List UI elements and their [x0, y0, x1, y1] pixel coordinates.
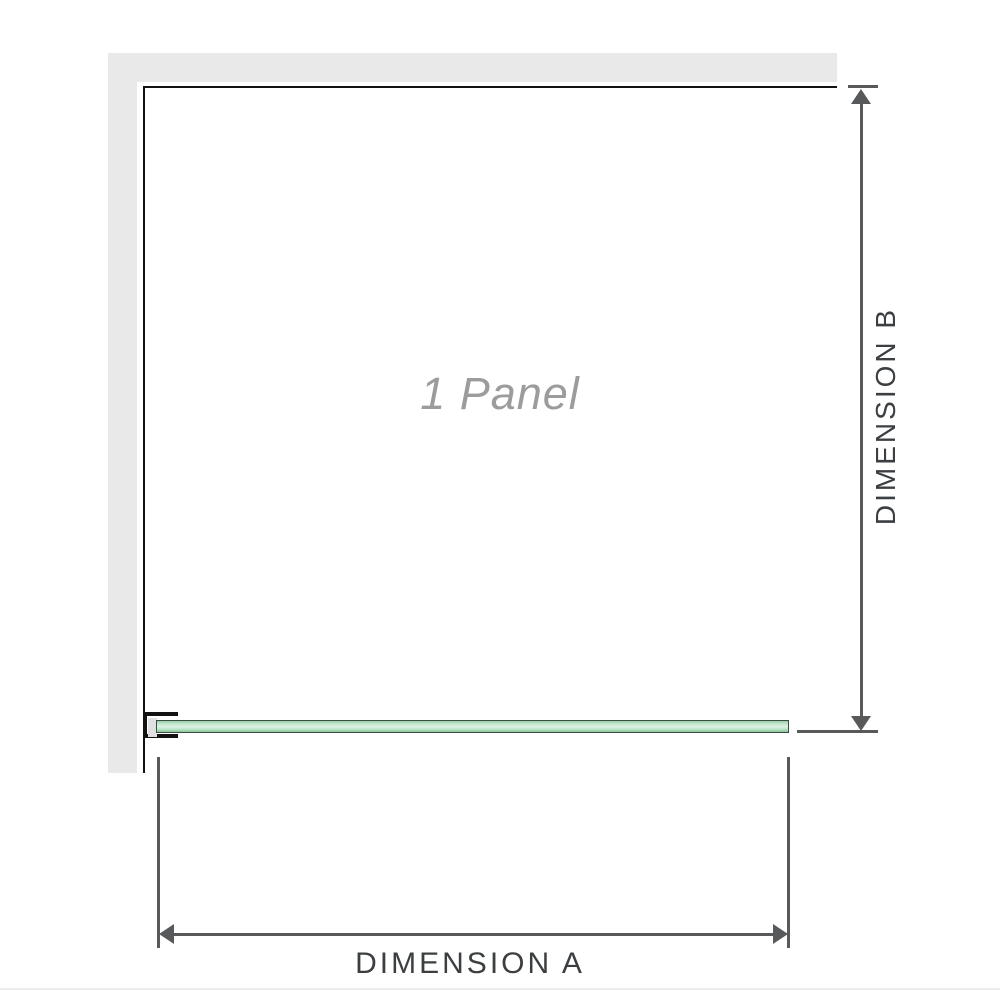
- arrow-down-icon: [851, 716, 871, 731]
- glass-panel: [156, 720, 789, 733]
- dim-b-tick-top: [848, 85, 878, 88]
- panel-outline-top: [143, 86, 837, 88]
- panel-count-watermark: 1 Panel: [290, 368, 710, 420]
- dim-b-line: [860, 92, 863, 728]
- dim-a-line: [163, 933, 784, 936]
- diagram-canvas: 1 Panel DIMENSION B DIMENSION A: [0, 0, 1000, 1000]
- baseline-rule: [0, 988, 1000, 990]
- arrow-right-icon: [773, 924, 788, 944]
- dim-a-extension-right: [787, 757, 790, 948]
- arrow-left-icon: [159, 924, 174, 944]
- wall-top: [108, 53, 837, 82]
- dim-a-label: DIMENSION A: [270, 947, 670, 981]
- panel-outline-left: [143, 86, 145, 773]
- dim-b-label: DIMENSION B: [870, 307, 902, 525]
- dim-a-extension-left: [157, 757, 160, 948]
- arrow-up-icon: [851, 89, 871, 104]
- wall-left: [108, 53, 137, 773]
